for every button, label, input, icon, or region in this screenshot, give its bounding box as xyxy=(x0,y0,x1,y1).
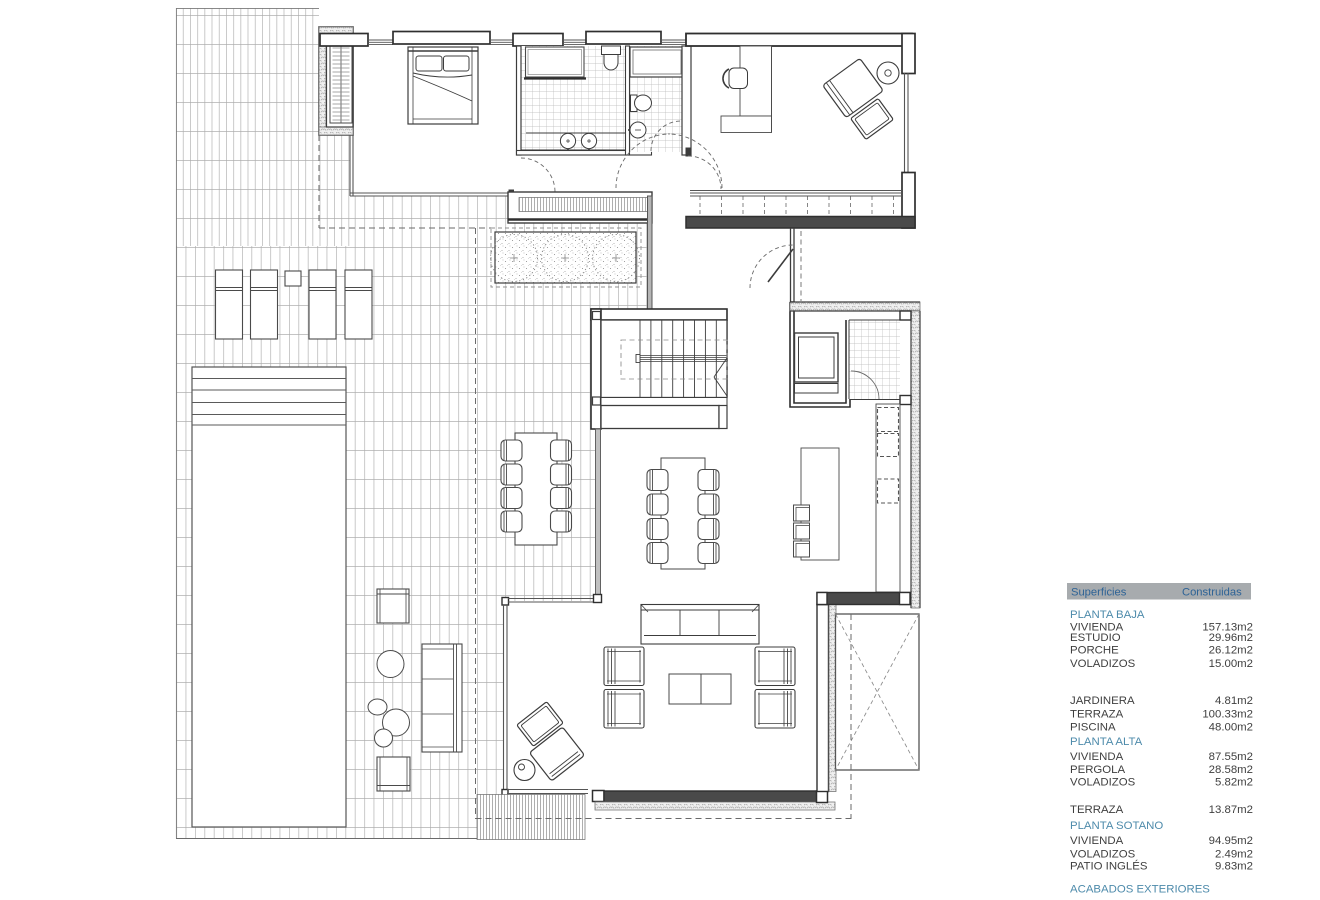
svg-text:9.83m2: 9.83m2 xyxy=(1215,861,1253,873)
svg-text:28.58m2: 28.58m2 xyxy=(1209,764,1253,776)
svg-text:94.95m2: 94.95m2 xyxy=(1209,835,1253,847)
svg-text:Superficies: Superficies xyxy=(1071,587,1127,599)
svg-text:Construidas: Construidas xyxy=(1182,587,1242,599)
svg-text:PORCHE: PORCHE xyxy=(1070,645,1119,657)
svg-text:26.12m2: 26.12m2 xyxy=(1209,645,1253,657)
svg-text:48.00m2: 48.00m2 xyxy=(1209,722,1253,734)
svg-text:PLANTA ALTA: PLANTA ALTA xyxy=(1070,736,1143,748)
svg-text:VOLADIZOS: VOLADIZOS xyxy=(1070,849,1136,861)
svg-text:15.00m2: 15.00m2 xyxy=(1209,658,1253,670)
svg-text:PLANTA SOTANO: PLANTA SOTANO xyxy=(1070,820,1163,832)
svg-text:13.87m2: 13.87m2 xyxy=(1209,804,1253,816)
svg-text:TERRAZA: TERRAZA xyxy=(1070,804,1124,816)
svg-text:VIVIENDA: VIVIENDA xyxy=(1070,751,1124,763)
svg-text:100.33m2: 100.33m2 xyxy=(1202,709,1253,721)
svg-text:PISCINA: PISCINA xyxy=(1070,722,1116,734)
svg-text:PATIO INGLÉS: PATIO INGLÉS xyxy=(1070,860,1148,873)
svg-text:ACABADOS EXTERIORES: ACABADOS EXTERIORES xyxy=(1070,884,1210,896)
svg-text:5.82m2: 5.82m2 xyxy=(1215,777,1253,789)
svg-text:ESTUDIO: ESTUDIO xyxy=(1070,632,1121,644)
svg-text:VIVIENDA: VIVIENDA xyxy=(1070,835,1124,847)
svg-text:TERRAZA: TERRAZA xyxy=(1070,709,1124,721)
svg-text:2.49m2: 2.49m2 xyxy=(1215,849,1253,861)
svg-text:VOLADIZOS: VOLADIZOS xyxy=(1070,777,1136,789)
svg-text:87.55m2: 87.55m2 xyxy=(1209,751,1253,763)
svg-text:VOLADIZOS: VOLADIZOS xyxy=(1070,658,1136,670)
svg-text:29.96m2: 29.96m2 xyxy=(1209,632,1253,644)
svg-text:JARDINERA: JARDINERA xyxy=(1070,695,1135,707)
svg-text:PLANTA BAJA: PLANTA BAJA xyxy=(1070,609,1145,621)
svg-text:PERGOLA: PERGOLA xyxy=(1070,764,1125,776)
svg-text:4.81m2: 4.81m2 xyxy=(1215,695,1253,707)
